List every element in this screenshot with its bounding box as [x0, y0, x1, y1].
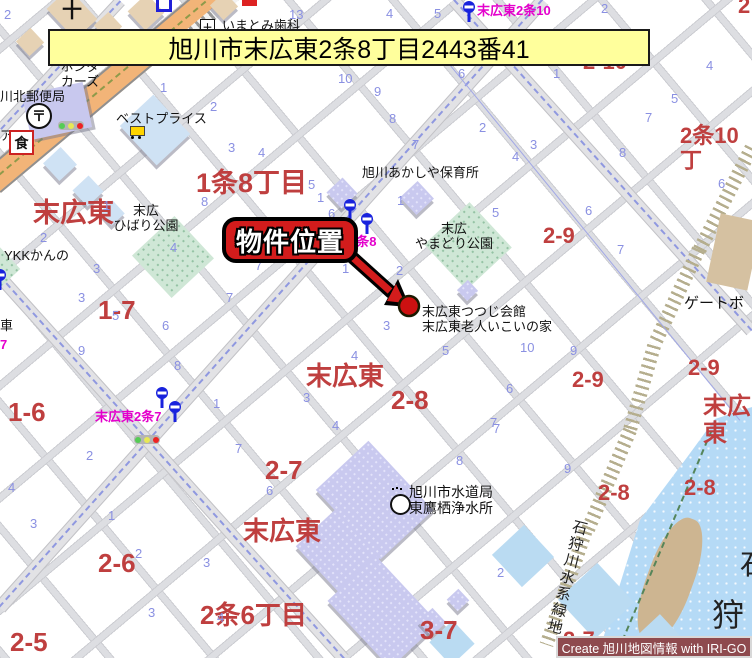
- area-label: 末広東: [703, 394, 752, 448]
- shopping-cart-wheels: [131, 136, 134, 139]
- block-number: 3: [228, 141, 235, 156]
- block-number: 10: [520, 341, 534, 356]
- block-number: 4: [258, 146, 265, 161]
- yellow-light: [68, 123, 74, 129]
- map-canvas[interactable]: 〒 食 ＋ 十 1条8丁目末広東1-71-6末広東2-82-7末広東2-62-5…: [0, 0, 752, 658]
- area-label: 2条10丁: [680, 124, 752, 173]
- block-number: 5: [434, 7, 441, 22]
- area-label: 1条8丁目: [196, 168, 307, 198]
- block-number: 3: [530, 138, 537, 153]
- restaurant-glyph: 食: [15, 133, 29, 153]
- area-label: 1-6: [8, 398, 46, 427]
- block-number: 8: [619, 146, 626, 161]
- area-label: 2-7: [265, 456, 303, 485]
- block-number: 3: [93, 262, 100, 277]
- bus-stop-icon: [168, 400, 182, 423]
- place-label: 川北郵便局: [0, 90, 65, 105]
- place-label: 狩: [712, 598, 744, 634]
- block-number: 5: [492, 206, 499, 221]
- block-number: 7: [226, 291, 233, 306]
- red-light: [153, 437, 159, 443]
- busstop-label: 末広東2条7: [95, 410, 161, 425]
- block-number: 3: [30, 517, 37, 532]
- red-light: [77, 123, 83, 129]
- block-number: 4: [170, 241, 177, 256]
- block-number: 6: [718, 177, 725, 192]
- block-number: 4: [217, 611, 224, 626]
- property-location-label: 物件位置: [236, 222, 344, 259]
- block-number: 1: [108, 509, 115, 524]
- block-number: 8: [201, 195, 208, 210]
- block-number: 3: [148, 606, 155, 621]
- block-number: 6: [266, 484, 273, 499]
- traffic-light-icon: [58, 121, 84, 130]
- property-location-callout[interactable]: 物件位置: [222, 217, 358, 263]
- block-number: 7: [617, 243, 624, 258]
- area-label: 2-8: [684, 476, 716, 501]
- place-label: 末広 ひばり公園: [102, 204, 190, 233]
- place-label: 車: [0, 319, 13, 334]
- green-light: [135, 437, 141, 443]
- area-label: 2-9: [543, 224, 575, 249]
- block-number: 8: [174, 359, 181, 374]
- block-number: 2: [210, 100, 217, 115]
- restaurant-icon: 食: [9, 130, 34, 155]
- block-number: 9: [374, 85, 381, 100]
- area-label: 2-9: [572, 368, 604, 393]
- bus-stop-icon: [155, 386, 169, 409]
- busstop-label: 7: [0, 338, 7, 353]
- area-label: 末広東: [306, 362, 384, 391]
- block-number: 4: [332, 419, 339, 434]
- church-cross-icon: 十: [62, 0, 82, 23]
- block-number: 7: [493, 422, 500, 437]
- block-number: 4: [386, 7, 393, 22]
- block-number: 8: [456, 454, 463, 469]
- block-number: 1: [160, 81, 167, 96]
- bus-stop-icon: [462, 0, 476, 23]
- area-label: 末広東: [243, 517, 321, 546]
- block-number: 6: [162, 319, 169, 334]
- place-label: 旭川あかしや保育所: [362, 166, 479, 181]
- block-number: 2: [497, 566, 504, 581]
- block-number: 2: [396, 264, 403, 279]
- block-number: 1: [317, 191, 324, 206]
- credit-text: Create 旭川地図情報 with IRI-GO: [562, 638, 747, 657]
- place-label: 末広 やまどり公園: [398, 222, 510, 251]
- block-number: 3: [78, 291, 85, 306]
- place-label: ゲートボ: [684, 296, 744, 313]
- block-number: 1: [342, 262, 349, 277]
- address-banner-text: 旭川市末広東2条8丁目2443番41: [168, 30, 529, 66]
- busstop-label: 末広東2条10: [477, 4, 551, 19]
- post-office-icon: 〒: [26, 103, 52, 129]
- bus-stop-icon: [0, 268, 7, 291]
- bus-stop-icon: [360, 212, 374, 235]
- block-number: 7: [235, 442, 242, 457]
- block-number: 4: [8, 481, 15, 496]
- address-banner: 旭川市末広東2条8丁目2443番41: [48, 29, 650, 66]
- building: [400, 181, 434, 215]
- block-number: 3: [303, 391, 310, 406]
- block-number: 2: [40, 231, 47, 246]
- area-label: 2-8: [598, 481, 630, 506]
- block-number: 10: [338, 72, 352, 87]
- block-number: 4: [351, 349, 358, 364]
- yellow-light: [144, 437, 150, 443]
- area-label: 3-7: [420, 616, 458, 645]
- block-number: 7: [645, 111, 652, 126]
- area-label: 2-8: [391, 386, 429, 415]
- block-number: 4: [706, 59, 713, 74]
- place-label: YKKかんの: [4, 249, 69, 264]
- block-number: 1: [103, 199, 110, 214]
- block-number: 3: [203, 556, 210, 571]
- credit-bar: Create 旭川地図情報 with IRI-GO: [556, 636, 752, 658]
- block-number: 6: [506, 382, 513, 397]
- place-label: 旭川市水道局 東鷹栖浄水所: [409, 485, 493, 516]
- block-number: 9: [564, 462, 571, 477]
- area-label: 2-6: [98, 549, 136, 578]
- area-label: 2-5: [10, 628, 48, 657]
- traffic-light-icon: [134, 435, 160, 444]
- levee-hatch: [623, 344, 661, 432]
- block-number: 2: [86, 449, 93, 464]
- block-number: 6: [458, 67, 465, 82]
- government-office-dots: [392, 488, 394, 490]
- place-label: 末広東つつじ会館 末広東老人いこいの家: [422, 305, 552, 334]
- map-symbol-icon: [156, 0, 172, 12]
- block-number: 9: [78, 344, 85, 359]
- government-office-icon: [390, 494, 411, 515]
- green-light: [59, 123, 65, 129]
- block-number: 3: [383, 319, 390, 334]
- block-number: 1: [553, 67, 560, 82]
- block-number: 1: [213, 397, 220, 412]
- block-number: 9: [570, 344, 577, 359]
- block-number: 13: [289, 8, 303, 23]
- block-number: 5: [308, 178, 315, 193]
- building: [16, 28, 44, 56]
- block-number: 5: [112, 309, 119, 324]
- block-number: 1: [397, 194, 404, 209]
- block-number: 2: [601, 2, 608, 17]
- block-number: 2: [479, 121, 486, 136]
- building: [447, 589, 470, 612]
- area-label: 2-9: [688, 356, 720, 381]
- block-number: 7: [412, 138, 419, 153]
- store-icon: [242, 0, 257, 6]
- shopping-cart-icon: [130, 126, 145, 136]
- block-number: 2: [4, 8, 11, 23]
- place-label: ベストプライス: [116, 112, 207, 127]
- block-number: 8: [389, 112, 396, 127]
- property-location-dot[interactable]: [399, 296, 419, 316]
- block-number: 5: [671, 92, 678, 107]
- block-number: 2: [135, 547, 142, 562]
- block-number: 6: [585, 204, 592, 219]
- block-number: 5: [442, 344, 449, 359]
- block-number: 4: [512, 150, 519, 165]
- post-glyph: 〒: [32, 106, 46, 126]
- area-label: 2: [738, 0, 750, 19]
- place-label: 石: [740, 550, 752, 581]
